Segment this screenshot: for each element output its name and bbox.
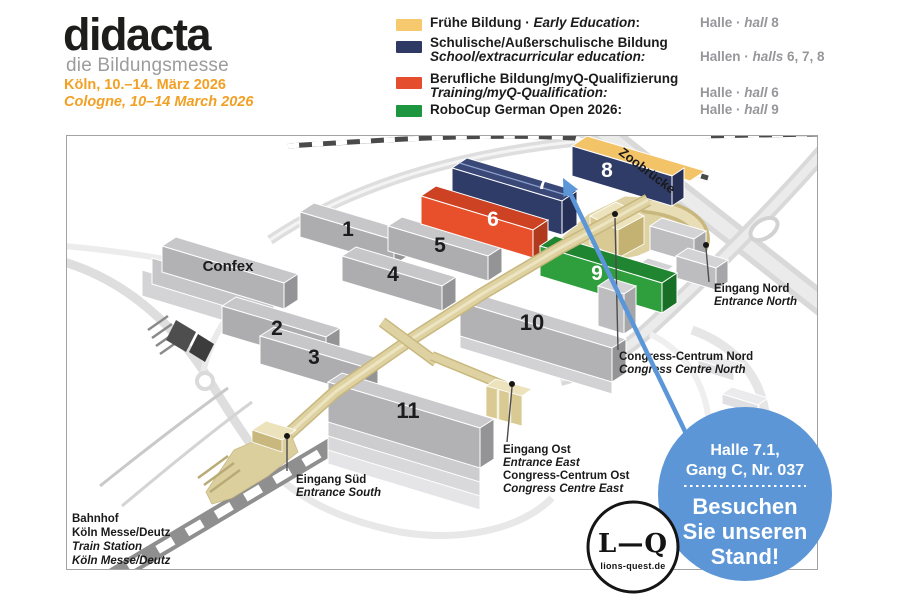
hall-9-label: 9 bbox=[591, 262, 603, 285]
stand-badge: Halle 7.1, Gang C, Nr. 037 Besuchen Sie … bbox=[658, 407, 832, 581]
hall-3-label: 3 bbox=[308, 346, 320, 369]
hall-8-label: 8 bbox=[601, 159, 613, 182]
fairground-map-svg: Confex Zoobrücke 1 2 3 4 5 6 7 8 9 10 11… bbox=[0, 0, 900, 600]
dot-congress-north bbox=[612, 211, 618, 217]
dot-entrance-east bbox=[509, 381, 515, 387]
hall-1-label: 1 bbox=[342, 218, 354, 241]
congress-east-label-en: Congress Centre East bbox=[503, 483, 624, 495]
didacta-fairground-map: didacta die Bildungsmesse Köln, 10.–14. … bbox=[0, 0, 900, 600]
hall-7-label: 7 bbox=[537, 171, 549, 194]
badge-cta-line-3: Stand! bbox=[711, 544, 779, 569]
hall-4-label: 4 bbox=[387, 263, 399, 286]
station-platforms bbox=[148, 316, 214, 362]
confex-label: Confex bbox=[203, 258, 254, 275]
congress-north-label-en: Congress Centre North bbox=[619, 364, 746, 376]
roundabout-west bbox=[197, 373, 213, 389]
dot-entrance-south bbox=[284, 433, 290, 439]
hall-9-path-detail bbox=[546, 288, 578, 296]
station-label-1: Bahnhof bbox=[72, 513, 119, 525]
dot-entrance-north bbox=[703, 242, 709, 248]
entrance-east-label-de: Eingang Ost bbox=[503, 444, 571, 456]
lq-monogram: L—Q bbox=[598, 529, 668, 559]
hall-10-label: 10 bbox=[520, 310, 544, 335]
entrance-north-label-de: Eingang Nord bbox=[714, 283, 789, 295]
badge-cta-line-2: Sie unseren bbox=[683, 519, 808, 544]
lions-quest-logo: L—Q lions-quest.de bbox=[588, 502, 678, 592]
station-label-4: Köln Messe/Deutz bbox=[72, 555, 171, 567]
hall-2-label: 2 bbox=[271, 317, 283, 340]
entrance-north-label-en: Entrance North bbox=[714, 296, 797, 308]
hall-5-label: 5 bbox=[434, 234, 446, 257]
lq-domain: lions-quest.de bbox=[600, 561, 665, 571]
congress-north-label-de: Congress-Centrum Nord bbox=[619, 351, 753, 363]
badge-hall-line-2: Gang C, Nr. 037 bbox=[686, 462, 804, 479]
entrance-east-label-en: Entrance East bbox=[503, 457, 581, 469]
station-label-3: Train Station bbox=[72, 541, 142, 553]
entrance-south-label-en: Entrance South bbox=[296, 487, 381, 499]
badge-cta-line-1: Besuchen bbox=[692, 494, 797, 519]
entrance-south-label-de: Eingang Süd bbox=[296, 474, 366, 486]
hall-6-label: 6 bbox=[487, 208, 499, 231]
badge-hall-line-1: Halle 7.1, bbox=[710, 442, 779, 459]
station-label-2: Köln Messe/Deutz bbox=[72, 527, 171, 539]
hall-11-label: 11 bbox=[396, 398, 419, 423]
hall-11-side bbox=[480, 419, 494, 468]
congress-east-label-de: Congress-Centrum Ost bbox=[503, 470, 630, 482]
